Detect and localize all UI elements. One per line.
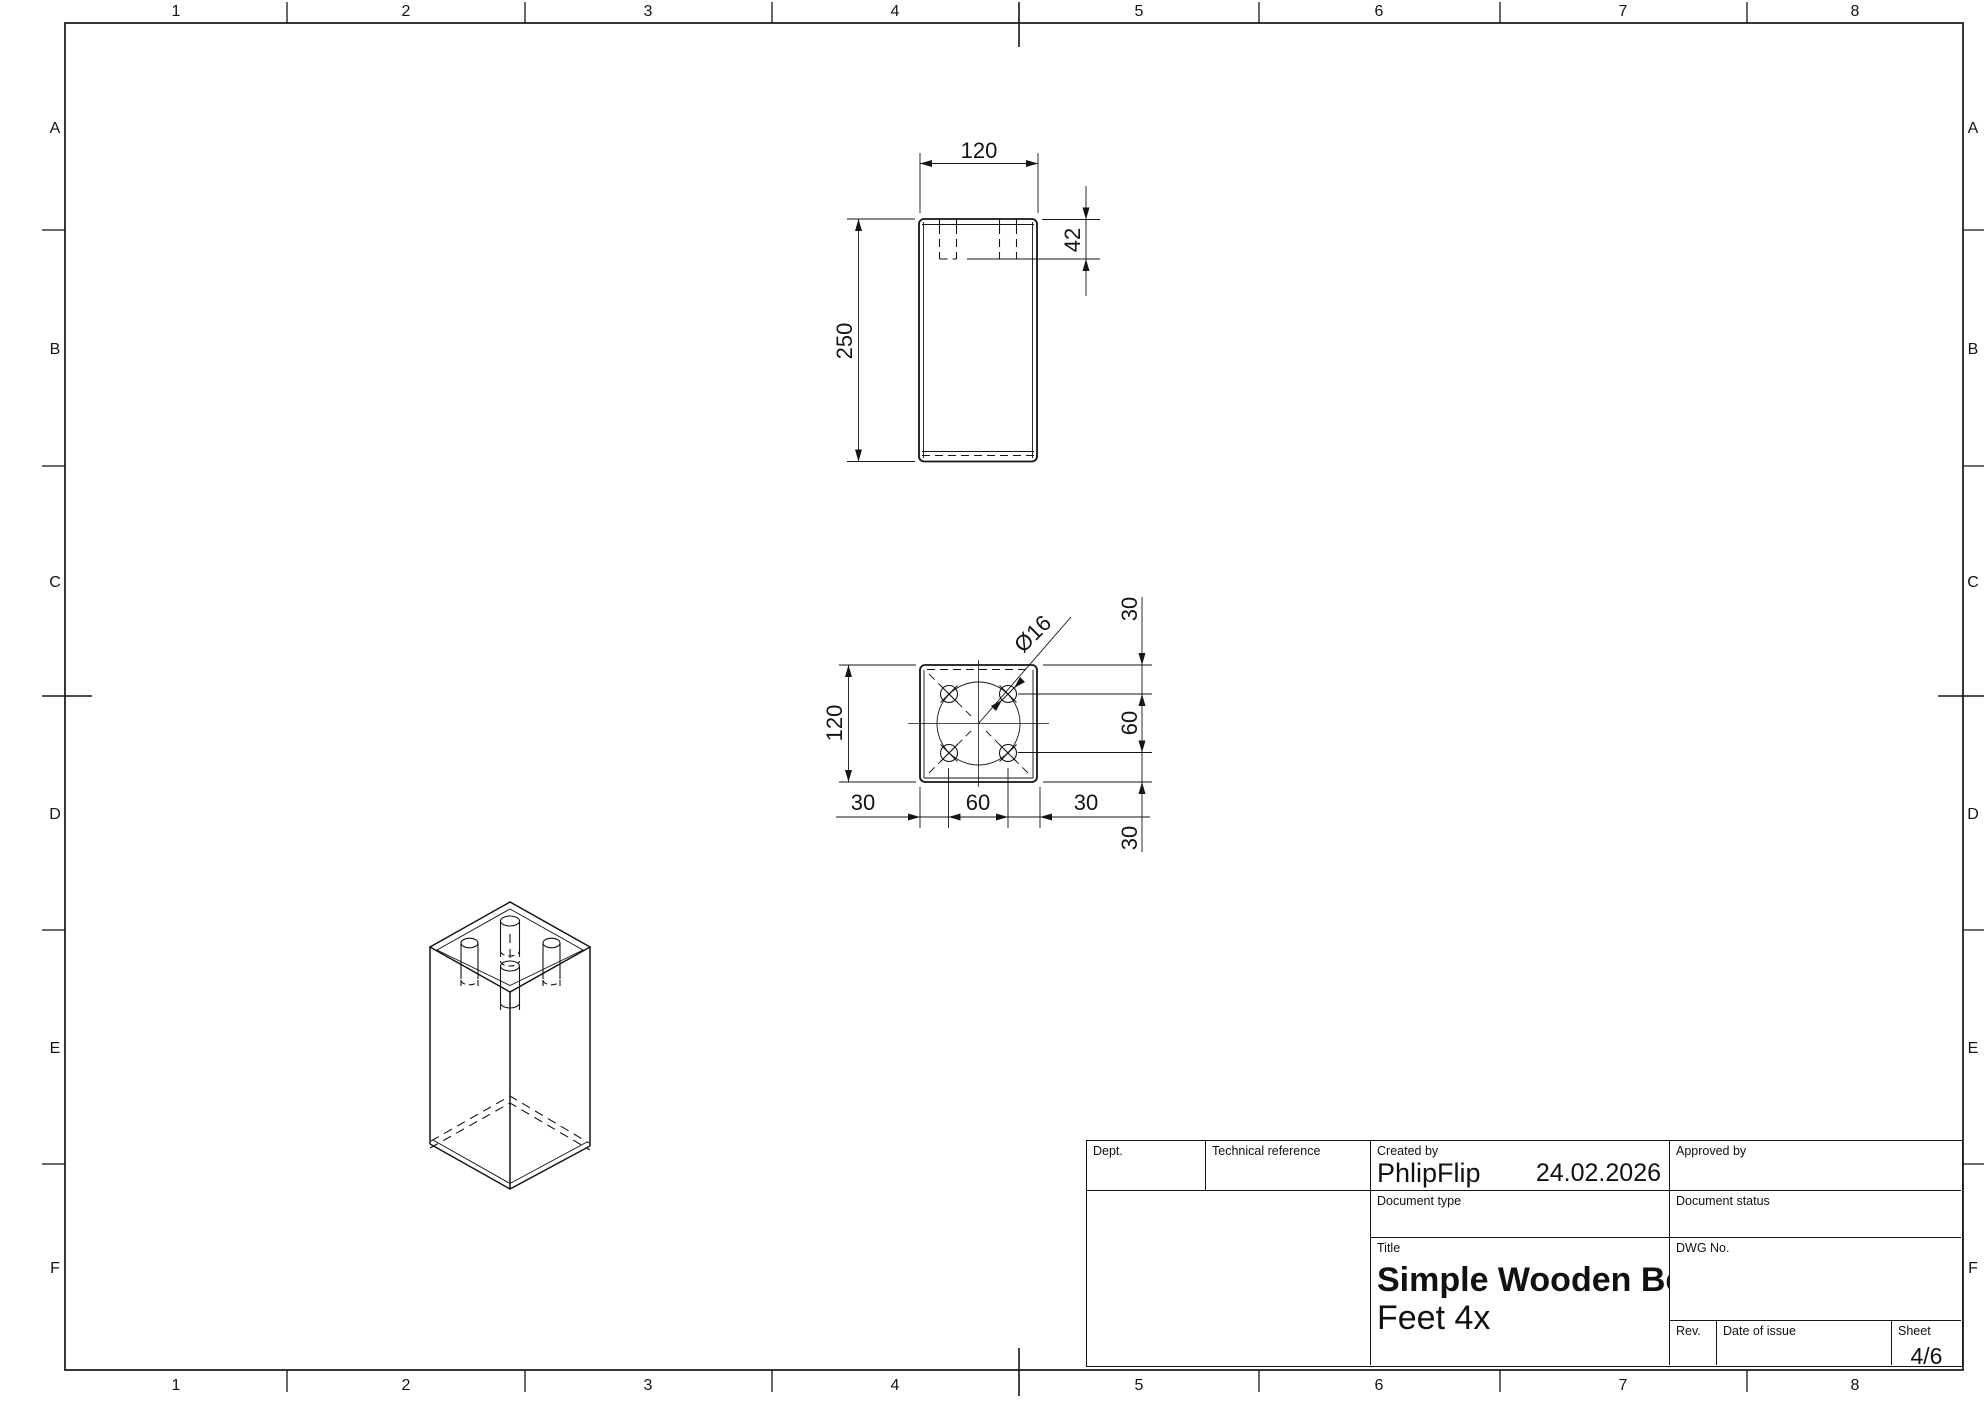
zone-row-label: F (50, 1260, 60, 1277)
dim-value: 120 (961, 138, 998, 163)
rev-label: Rev. (1670, 1321, 1716, 1339)
drawing-title: Simple Wooden Bed (1371, 1256, 1669, 1299)
frame-ticks-right (1938, 230, 1984, 1164)
zone-row-label: E (50, 1040, 61, 1057)
date-of-issue-cell: Date of issue (1717, 1321, 1892, 1365)
top-view (836, 597, 1152, 852)
zone-row-label: C (1967, 574, 1979, 591)
zone-row-label: D (1967, 806, 1979, 823)
zone-col-label: 5 (1135, 1377, 1144, 1394)
zone-col-label: 4 (891, 3, 900, 20)
document-type-cell: Document type (1371, 1191, 1670, 1238)
zone-col-label: 6 (1375, 1377, 1384, 1394)
zone-row-label: C (49, 574, 61, 591)
rev-cell: Rev. (1670, 1321, 1717, 1365)
zone-col-label: 7 (1619, 3, 1628, 20)
technical-reference-label: Technical reference (1206, 1141, 1370, 1159)
dim-value: 60 (1117, 711, 1142, 735)
document-status-cell: Document status (1670, 1191, 1961, 1238)
frame-ticks-top (287, 2, 1747, 47)
zone-col-label: 8 (1851, 1377, 1860, 1394)
title-cell: Title Simple Wooden Bed Feet 4x (1371, 1238, 1670, 1365)
dim-value: 30 (851, 790, 875, 815)
sheet-label: Sheet (1892, 1321, 1961, 1339)
zone-col-label: 6 (1375, 3, 1384, 20)
empty-cell (1087, 1191, 1371, 1365)
creation-date: 24.02.2026 (1536, 1160, 1661, 1187)
zone-col-label: 2 (402, 3, 411, 20)
zone-col-label: 7 (1619, 1377, 1628, 1394)
dim-value: 30 (1074, 790, 1098, 815)
approved-by-cell: Approved by (1670, 1141, 1961, 1191)
zone-row-label: A (1968, 120, 1979, 137)
drawing-sheet: 1 2 3 4 5 6 7 8 1 2 3 4 5 6 7 8 A B C D … (0, 0, 1984, 1403)
dept-cell: Dept. (1087, 1141, 1206, 1191)
dim-value: 120 (822, 705, 847, 742)
zone-row-label: D (49, 806, 61, 823)
zone-col-label: 4 (891, 1377, 900, 1394)
zone-col-label: 1 (172, 3, 181, 20)
hidden-dowel-holes (940, 219, 1017, 259)
frame-ticks-left (42, 230, 92, 1164)
title-label: Title (1371, 1238, 1669, 1256)
zone-col-label: 2 (402, 1377, 411, 1394)
dim-front-height (847, 219, 915, 462)
technical-reference-cell: Technical reference (1206, 1141, 1371, 1191)
created-by-cell: Created by PhlipFlip 24.02.2026 (1371, 1141, 1670, 1191)
drawing-subtitle: Feet 4x (1371, 1299, 1669, 1337)
front-view-dims: 120 250 42 (832, 138, 1085, 359)
zone-row-label: F (1968, 1260, 1978, 1277)
document-type-label: Document type (1371, 1191, 1669, 1209)
sheet-number: 4/6 (1892, 1339, 1961, 1365)
approved-by-label: Approved by (1670, 1141, 1961, 1159)
dim-top-size (839, 665, 916, 782)
date-of-issue-label: Date of issue (1717, 1321, 1891, 1339)
created-by-value: PhlipFlip (1377, 1159, 1481, 1187)
dwg-no-cell: DWG No. (1670, 1238, 1961, 1321)
zone-row-label: E (1968, 1040, 1979, 1057)
dept-label: Dept. (1087, 1141, 1205, 1159)
dim-value: 42 (1060, 228, 1085, 252)
front-view (847, 153, 1100, 462)
document-status-label: Document status (1670, 1191, 1961, 1209)
isometric-view (430, 902, 590, 1189)
created-by-label: Created by (1371, 1141, 1669, 1159)
dwg-no-label: DWG No. (1670, 1238, 1961, 1256)
zone-col-label: 5 (1135, 3, 1144, 20)
zone-row-label: B (1968, 341, 1979, 358)
dim-bottom-chain (836, 768, 1150, 828)
dim-value: Ø16 (1009, 610, 1056, 657)
zone-col-label: 1 (172, 1377, 181, 1394)
zone-col-label: 3 (644, 3, 653, 20)
dim-value: 60 (966, 790, 990, 815)
title-block: Dept. Technical reference Created by Phl… (1086, 1140, 1963, 1367)
zone-col-label: 8 (1851, 3, 1860, 20)
zone-col-label: 3 (644, 1377, 653, 1394)
dim-value: 250 (832, 323, 857, 360)
dim-value: 30 (1117, 597, 1142, 621)
sheet-cell: Sheet 4/6 (1892, 1321, 1961, 1365)
zone-row-label: A (50, 120, 61, 137)
dim-value: 30 (1117, 826, 1142, 850)
zone-row-label: B (50, 341, 61, 358)
